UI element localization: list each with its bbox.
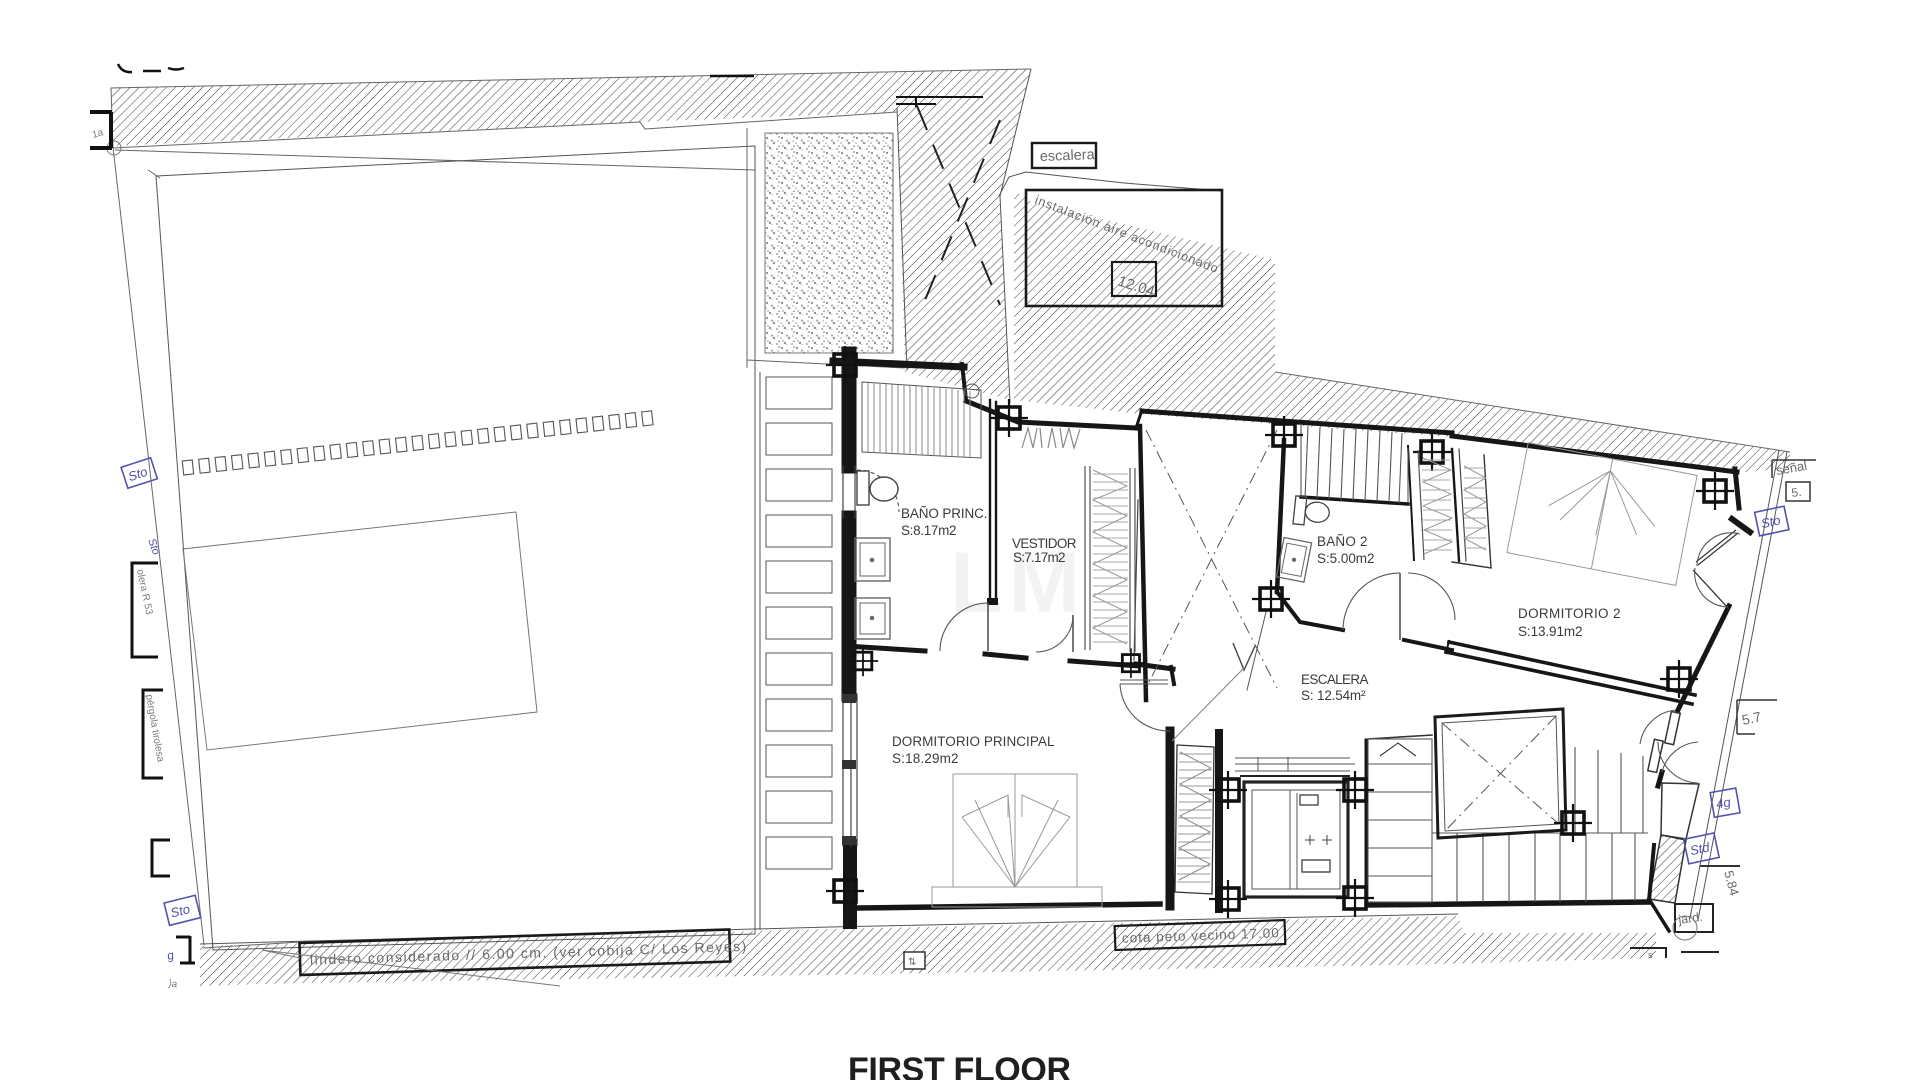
- svg-text:⇅: ⇅: [908, 957, 916, 968]
- svg-text:VESTIDOR: VESTIDOR: [1012, 536, 1077, 551]
- svg-text:jard.: jard.: [1676, 910, 1703, 927]
- svg-text:g: g: [166, 948, 176, 963]
- svg-text:BAÑO PRINC.: BAÑO PRINC.: [901, 506, 988, 521]
- svg-text:S:7.17m2: S:7.17m2: [1013, 550, 1066, 565]
- svg-text:5.84: 5.84: [1721, 869, 1742, 897]
- svg-text:S:5.00m2: S:5.00m2: [1317, 551, 1375, 566]
- svg-text:DORMITORIO PRINCIPAL: DORMITORIO PRINCIPAL: [892, 734, 1055, 749]
- svg-text:1a: 1a: [91, 127, 105, 141]
- svg-text:BAÑO 2: BAÑO 2: [1317, 534, 1368, 549]
- svg-text:Sto: Sto: [126, 464, 149, 484]
- svg-text:ESCALERA: ESCALERA: [1301, 672, 1369, 687]
- svg-text:olera R 53: olera R 53: [134, 568, 154, 616]
- svg-text:S:18.29m2: S:18.29m2: [892, 751, 959, 766]
- svg-text:s: s: [1648, 950, 1653, 960]
- svg-text:)a: )a: [167, 978, 178, 990]
- svg-text:S: 12.54m²: S: 12.54m²: [1301, 688, 1366, 703]
- svg-text:4g: 4g: [1715, 794, 1733, 811]
- svg-text:5.: 5.: [1790, 485, 1802, 500]
- svg-text:S:8.17m2: S:8.17m2: [901, 523, 957, 538]
- svg-text:Sto: Sto: [1760, 512, 1782, 531]
- svg-text:5.7: 5.7: [1740, 708, 1763, 728]
- svg-text:Sto: Sto: [169, 901, 192, 920]
- svg-text:FIRST FLOOR: FIRST FLOOR: [848, 1051, 1072, 1080]
- svg-text:escalera: escalera: [1040, 147, 1096, 165]
- svg-text:DORMITORIO 2: DORMITORIO 2: [1518, 606, 1621, 621]
- svg-text:Std: Std: [1689, 839, 1712, 858]
- svg-text:pérgola tirolesa: pérgola tirolesa: [143, 694, 166, 764]
- svg-text:S:13.91m2: S:13.91m2: [1518, 624, 1583, 639]
